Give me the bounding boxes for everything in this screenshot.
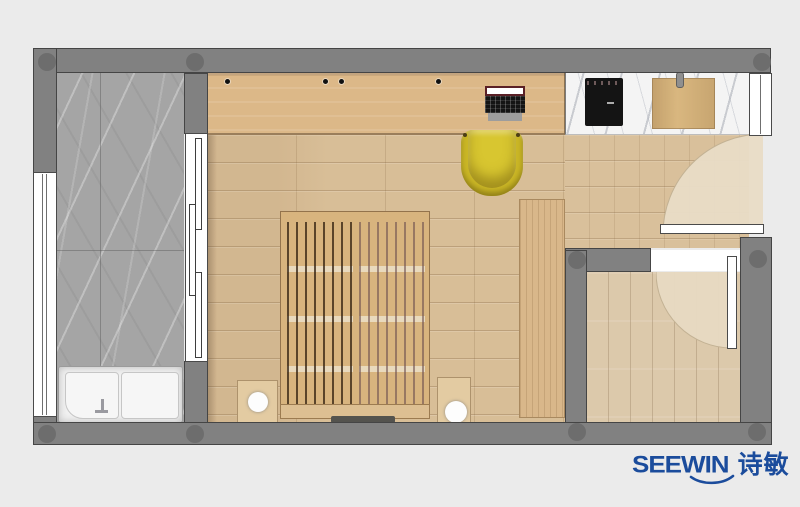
- column-dot-room2-bl: [568, 423, 586, 441]
- lamp-right: [445, 401, 467, 423]
- yellow-tub-chair: [461, 130, 523, 196]
- floor-plan: SEEWIN 诗敏: [0, 0, 800, 507]
- column-dot-top-right: [753, 53, 771, 71]
- bed-slats-left: [287, 222, 353, 404]
- laptop-screen: [485, 86, 525, 96]
- column-dot-top-mid: [186, 53, 204, 71]
- sliding-door-panel-1: [195, 138, 202, 230]
- column-dot-bottom-left: [38, 425, 56, 443]
- entry-door-swing-arc: [663, 134, 764, 235]
- wall-divider-top: [184, 73, 208, 134]
- bathtub-deck-section: [121, 372, 179, 419]
- bathtub: [58, 366, 183, 423]
- cabinet-knob-1: [225, 79, 230, 84]
- brand-logo: SEEWIN 诗敏: [632, 453, 790, 477]
- column-dot-entry-right: [749, 250, 767, 268]
- cooktop: [585, 78, 623, 126]
- bathtub-shower-section: [65, 372, 119, 419]
- cabinet-knob-4: [436, 79, 441, 84]
- wall-divider-bottom: [184, 361, 208, 423]
- wall-room2-left: [565, 250, 587, 423]
- chair-pin-left: [463, 133, 467, 137]
- cooktop-display: [607, 102, 614, 104]
- wardrobe: [519, 199, 565, 418]
- chair-pin-right: [516, 133, 520, 137]
- floor-edge-shadow: [208, 135, 217, 423]
- board-handle: [676, 72, 684, 88]
- laptop-keyboard: [485, 96, 525, 113]
- secondary-room-door-swing-arc: [656, 272, 733, 349]
- brand-logo-swoosh: [688, 474, 736, 486]
- window-left-glass-line-1: [42, 174, 43, 415]
- window-right-divider: [760, 75, 761, 134]
- sliding-door: [185, 133, 208, 362]
- room2-door-leaf: [727, 256, 737, 349]
- marble-tile-seam-horizontal: [57, 250, 184, 251]
- cabinet-knob-3: [339, 79, 344, 84]
- column-dot-room2-br: [748, 423, 766, 441]
- column-dot-entry-left: [568, 251, 586, 269]
- brand-logo-latin: SEEWIN: [632, 454, 729, 474]
- column-dot-top-left: [38, 53, 56, 71]
- wall-bottom: [33, 422, 772, 445]
- window-left: [33, 172, 57, 417]
- wall-top: [33, 48, 771, 73]
- entry-door-leaf: [660, 224, 764, 234]
- bed-slatted-frame: [280, 211, 430, 406]
- bathtub-faucet-spout: [95, 410, 108, 413]
- laptop-palmrest: [488, 113, 522, 121]
- bed-slats-right: [359, 222, 425, 404]
- marble-tile-seam-vertical: [100, 73, 101, 366]
- column-dot-bottom-mid: [186, 425, 204, 443]
- sliding-door-panel-3: [195, 272, 202, 358]
- lamp-left: [248, 392, 268, 412]
- cabinet-knob-2: [323, 79, 328, 84]
- window-left-glass-line-2: [46, 174, 47, 415]
- chair-seat: [468, 130, 516, 188]
- brand-logo-cjk: 诗敏: [738, 453, 790, 477]
